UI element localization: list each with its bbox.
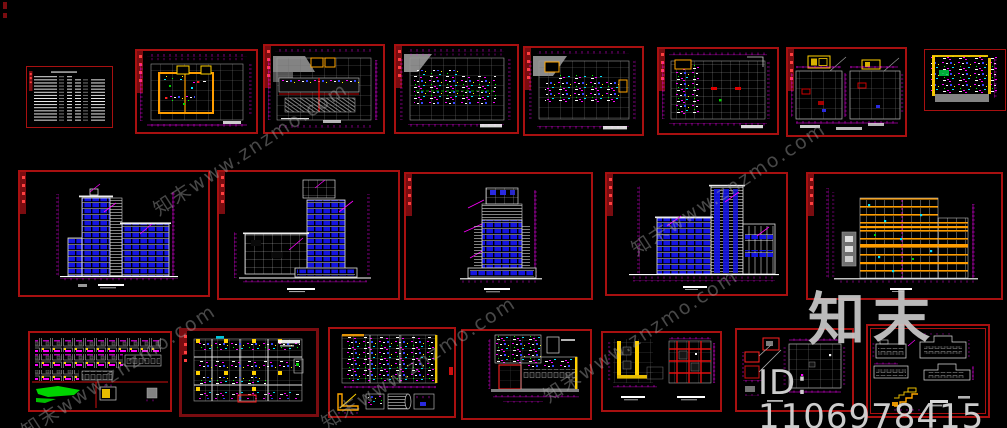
sheet-floor-plan-3[interactable]	[394, 44, 519, 134]
sheet-color-block-plan[interactable]	[924, 49, 1006, 111]
sheet-elevation-1[interactable]	[18, 170, 210, 297]
elevation-1-drawing	[20, 172, 208, 295]
sheet-unit-plan-detail[interactable]	[179, 328, 319, 417]
floor-plan-2-drawing	[265, 46, 383, 132]
offscreen-sheet-fragment	[3, 13, 7, 18]
sheet-general-notes[interactable]	[26, 66, 113, 128]
small-elevations-drawing	[868, 326, 988, 416]
offscreen-sheet-fragment	[3, 2, 7, 9]
sheet-elevation-2[interactable]	[217, 170, 400, 300]
sheet-elevation-3[interactable]	[404, 172, 593, 300]
sheet-floor-plan-4[interactable]	[523, 46, 644, 136]
door-window-details-drawing	[30, 333, 170, 410]
cad-canvas: 知末www.znzmo.com 知末www.znzmo.com 知末www.zn…	[0, 0, 1007, 428]
core-details-drawing	[603, 333, 720, 410]
unit-plan-detail-drawing	[182, 331, 316, 414]
floor-plan-1-drawing	[137, 51, 256, 132]
sheet-building-section[interactable]	[806, 172, 1003, 300]
sheet-floor-plan-2[interactable]	[263, 44, 385, 134]
sheet-core-details[interactable]	[601, 331, 722, 412]
sheet-elevation-4[interactable]	[605, 172, 788, 296]
sheet-door-window-details[interactable]	[28, 331, 172, 412]
roof-plans-drawing	[788, 49, 905, 135]
floor-plan-4-drawing	[525, 48, 642, 134]
plan-detail-b-drawing	[463, 331, 590, 418]
sheet-roof-plans[interactable]	[786, 47, 907, 137]
sheet-small-elevations[interactable]	[866, 324, 990, 418]
sheet-node-details[interactable]	[735, 328, 854, 412]
floor-plan-5-drawing	[659, 49, 777, 133]
elevation-4-drawing	[607, 174, 786, 294]
color-block-plan-drawing	[925, 50, 1003, 108]
building-section-drawing	[808, 174, 1001, 298]
sheet-plan-detail-b[interactable]	[461, 329, 592, 420]
elevation-2-drawing	[219, 172, 398, 298]
sheet-floor-plan-5[interactable]	[657, 47, 779, 135]
general-notes-drawing	[27, 67, 110, 125]
plan-detail-a-drawing	[330, 329, 454, 416]
sheet-plan-detail-a[interactable]	[328, 327, 456, 418]
node-details-drawing	[737, 330, 852, 410]
sheet-floor-plan-1[interactable]	[135, 49, 258, 134]
elevation-3-drawing	[406, 174, 591, 298]
floor-plan-3-drawing	[396, 46, 517, 132]
